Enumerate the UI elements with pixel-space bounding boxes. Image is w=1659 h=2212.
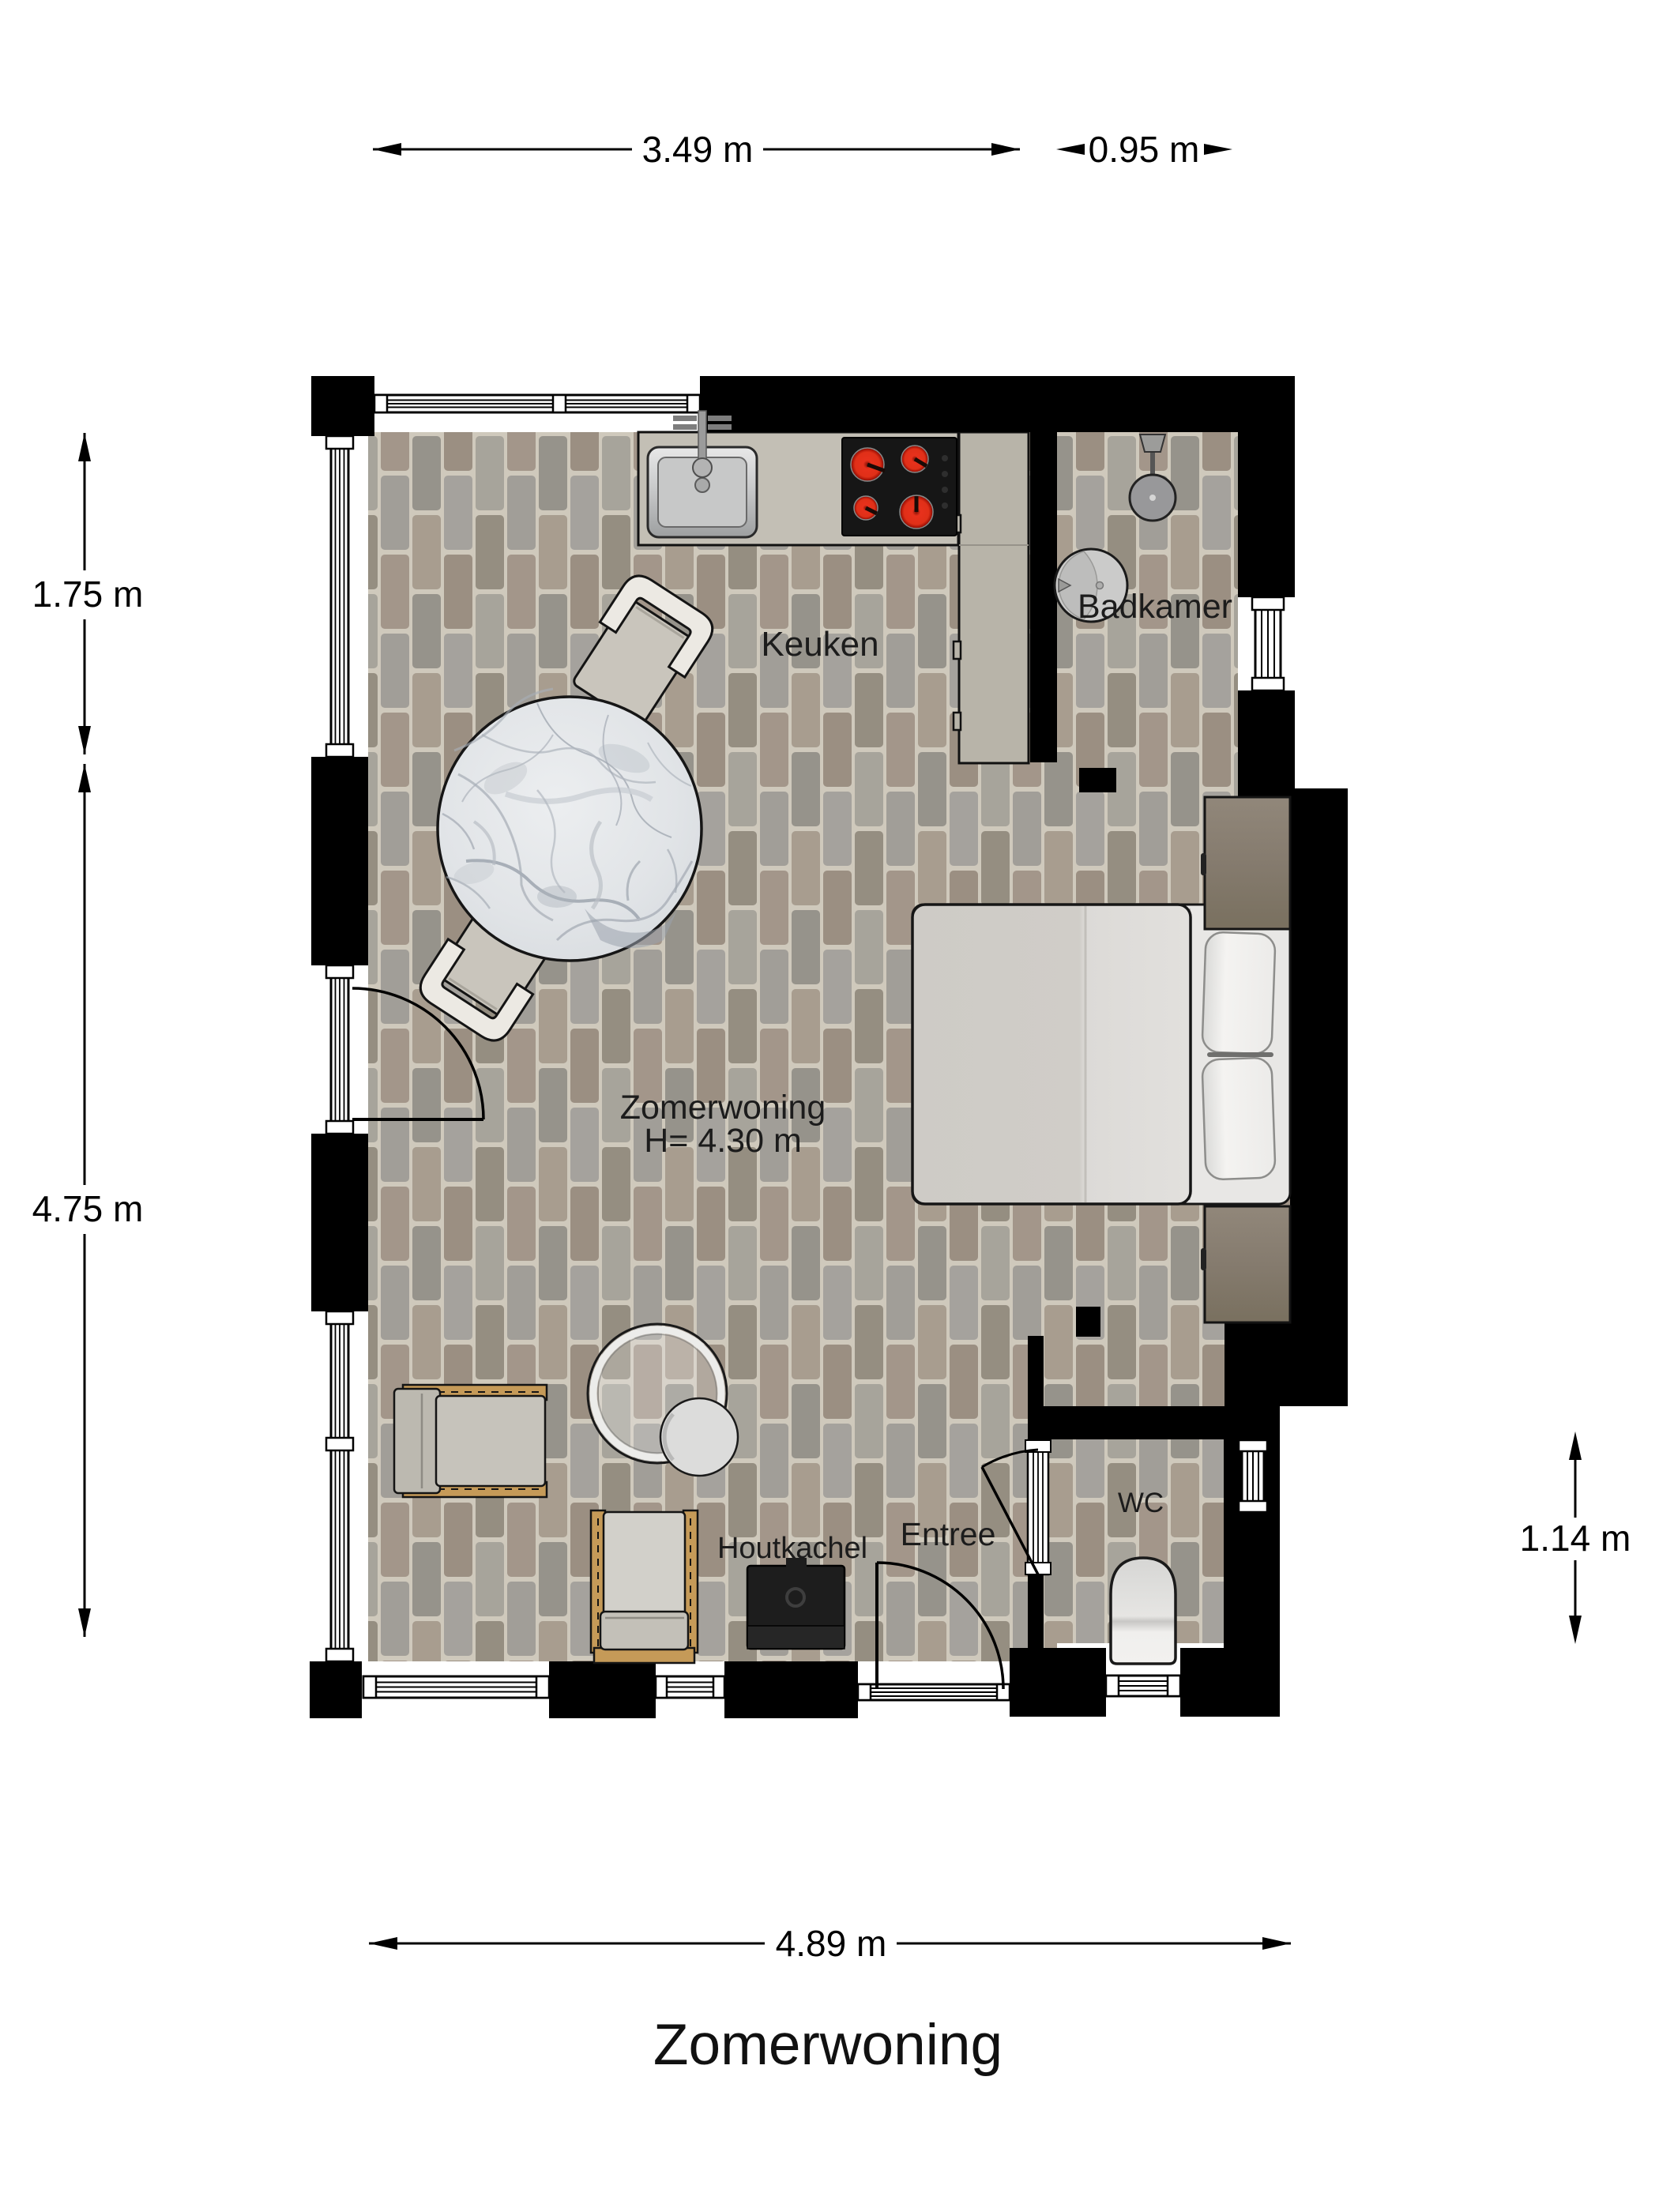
svg-text:H= 4.30 m: H= 4.30 m xyxy=(644,1122,802,1160)
svg-text:4.75 m: 4.75 m xyxy=(32,1188,144,1229)
svg-text:Badkamer: Badkamer xyxy=(1078,588,1232,626)
svg-text:Houtkachel: Houtkachel xyxy=(717,1532,867,1565)
svg-text:Zomerwoning: Zomerwoning xyxy=(620,1089,826,1127)
svg-text:1.75 m: 1.75 m xyxy=(32,574,144,615)
svg-text:Entree: Entree xyxy=(901,1516,996,1552)
svg-text:3.49 m: 3.49 m xyxy=(642,129,754,170)
svg-text:Keuken: Keuken xyxy=(761,625,878,664)
svg-text:Zomerwoning: Zomerwoning xyxy=(653,2013,1003,2077)
svg-text:WC: WC xyxy=(1118,1488,1164,1518)
svg-text:4.89 m: 4.89 m xyxy=(776,1923,887,1964)
svg-text:0.95 m: 0.95 m xyxy=(1089,129,1200,170)
svg-text:1.14 m: 1.14 m xyxy=(1520,1518,1631,1559)
